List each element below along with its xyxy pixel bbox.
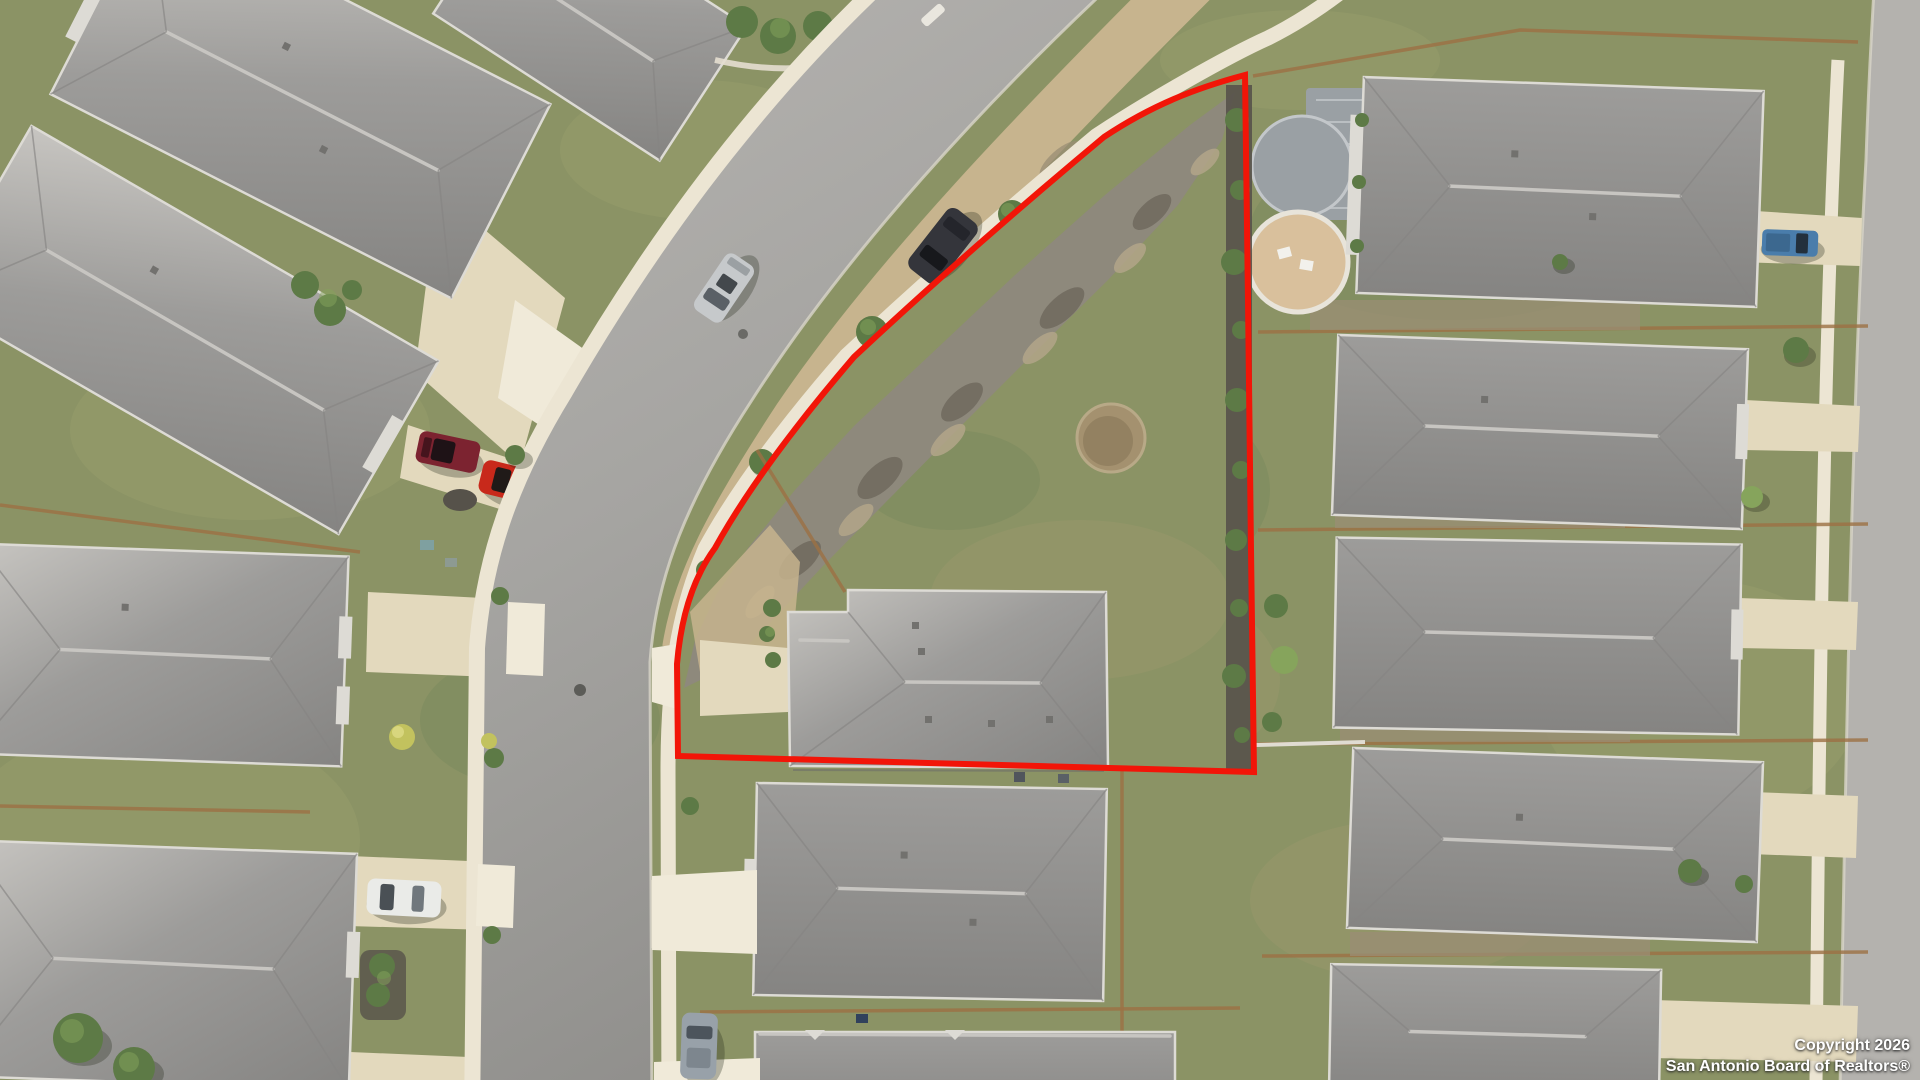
apron-left-2 (476, 864, 515, 928)
house-bottom-center (742, 783, 1107, 1001)
tree (681, 797, 699, 815)
house-right-4 (1347, 748, 1763, 942)
house-right-5 (1329, 964, 1661, 1080)
utility-box (445, 558, 457, 567)
tree (491, 587, 509, 605)
sand-circle (1248, 212, 1348, 312)
aerial-photo-canvas (0, 0, 1920, 1080)
driveway-right-2 (1743, 400, 1860, 452)
shrub (1262, 712, 1282, 732)
watermark-line2: San Antonio Board of Realtors® (1666, 1057, 1910, 1077)
house-mid-left (0, 544, 355, 767)
dirt-circle (1077, 404, 1145, 472)
utility-box (420, 540, 434, 550)
shrub (1264, 594, 1288, 618)
apron-bottom-1 (652, 870, 757, 954)
yellow-shrub (389, 724, 415, 750)
shrub-bed (360, 950, 406, 1020)
house-bottom-center-2 (755, 1030, 1175, 1080)
house-right-2 (1332, 335, 1751, 529)
manhole (574, 684, 586, 696)
house-right-1 (1344, 77, 1763, 307)
watermark: Copyright 2026 San Antonio Board of Real… (1666, 1036, 1910, 1077)
tree (1735, 875, 1753, 893)
shrub (1350, 239, 1364, 253)
shrub (1270, 646, 1298, 674)
shrub (1355, 113, 1369, 127)
driveway-right-3 (1736, 598, 1858, 650)
subject-house (788, 590, 1108, 771)
mulch-ring (443, 489, 477, 511)
manhole (738, 329, 748, 339)
tree (483, 926, 501, 944)
shrub (1352, 175, 1366, 189)
yellow-shrub (481, 733, 497, 749)
ac-unit (1058, 774, 1069, 783)
aerial-photo: Copyright 2026 San Antonio Board of Real… (0, 0, 1920, 1080)
subject-driveway (700, 640, 788, 716)
house-right-3 (1333, 537, 1744, 734)
trash-bin (856, 1014, 868, 1023)
watermark-line1: Copyright 2026 (1666, 1036, 1910, 1056)
ac-unit (1014, 772, 1025, 782)
tree (484, 748, 504, 768)
apron-left-1 (506, 602, 545, 676)
backyard-gravel (1310, 300, 1640, 330)
